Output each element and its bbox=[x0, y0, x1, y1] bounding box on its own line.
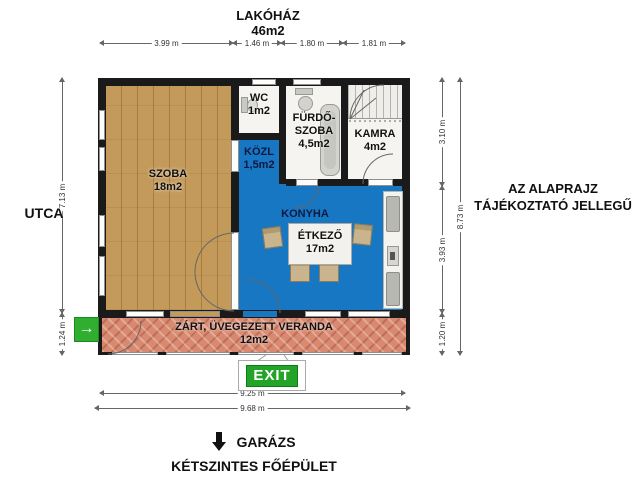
street-label: UTCA bbox=[14, 205, 74, 222]
konyha-label: KONYHA bbox=[240, 208, 370, 221]
wc-label: WC 1m2 bbox=[239, 92, 279, 118]
veranda-label: ZÁRT, ÜVEGEZETT VERANDA 12m2 bbox=[105, 321, 403, 347]
kamra-label: KAMRA 4m2 bbox=[345, 128, 405, 154]
furdoszoba-label: FÜRDŐ- SZOBA 4,5m2 bbox=[284, 112, 344, 151]
garage-label: GARÁZS bbox=[236, 434, 295, 450]
kamra-door-arc bbox=[363, 154, 393, 184]
main-building-label: KÉTSZINTES FŐÉPÜLET bbox=[171, 458, 337, 474]
szoba-door-arc-upper bbox=[195, 233, 234, 272]
stairs-fan-line-1 bbox=[350, 90, 364, 119]
main-building-note: KÉTSZINTES FŐÉPÜLET bbox=[98, 458, 410, 474]
szoba-door-arc-lower bbox=[195, 272, 234, 311]
entrance-arrow-icon: → bbox=[74, 317, 99, 342]
szoba-label: SZOBA 18m2 bbox=[105, 168, 231, 194]
exit-sign: EXIT bbox=[246, 365, 298, 387]
garage-note: GARÁZS bbox=[98, 432, 410, 451]
floorplan-page: LAKÓHÁZ 46m2 3.99 m 1.46 m 1.80 m 1.81 m… bbox=[0, 0, 640, 480]
disclaimer-note: AZ ALAPRAJZ TÁJÉKOZTATÓ JELLEGŰ bbox=[470, 180, 636, 214]
konyha-area-label: ÉTKEZŐ 17m2 bbox=[288, 230, 352, 256]
stairs-fan-arc bbox=[350, 85, 384, 119]
kozlekedo-label: KÖZL 1,5m2 bbox=[236, 146, 282, 172]
furdoszoba-door-arc bbox=[296, 186, 318, 208]
stairs-fan-line-2 bbox=[350, 98, 376, 119]
kitchen-veranda-door-arc bbox=[246, 279, 280, 313]
garage-down-arrow-icon bbox=[212, 432, 226, 451]
